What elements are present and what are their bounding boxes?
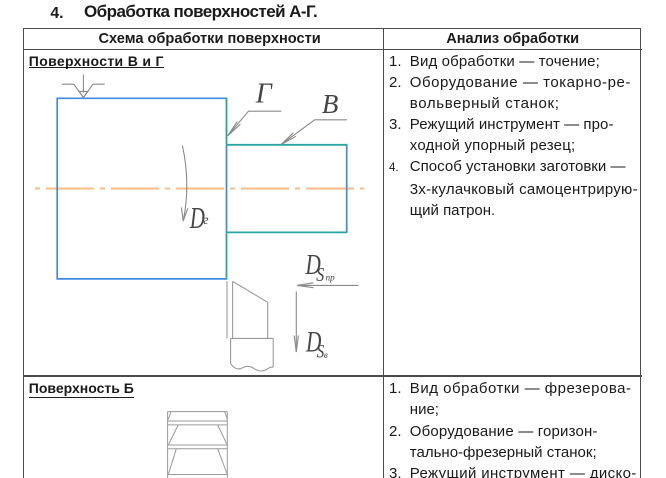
svg-text:S: S [316, 263, 324, 285]
svg-text:г: г [203, 212, 208, 227]
svg-text:В: В [322, 89, 339, 119]
svg-text:пр: пр [326, 272, 336, 282]
svg-text:Г: Г [255, 79, 273, 110]
svg-text:в: в [324, 350, 328, 360]
